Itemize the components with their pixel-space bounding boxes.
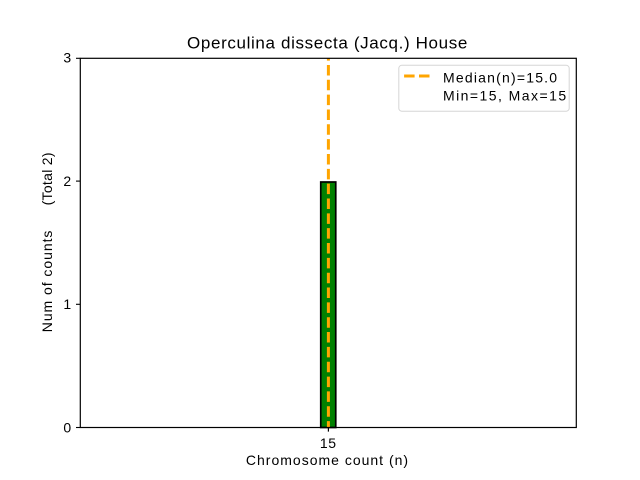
svg-text:Operculina dissecta (Jacq.) Ho: Operculina dissecta (Jacq.) House: [187, 33, 468, 52]
svg-text:Median(n)=15.0: Median(n)=15.0: [443, 70, 558, 86]
svg-text:Min=15, Max=15: Min=15, Max=15: [443, 88, 568, 104]
svg-text:3: 3: [63, 50, 71, 66]
svg-text:2: 2: [63, 173, 71, 189]
svg-text:15: 15: [320, 435, 337, 451]
svg-text:0: 0: [63, 419, 71, 435]
svg-text:1: 1: [63, 296, 71, 312]
svg-text:Chromosome count (n): Chromosome count (n): [246, 452, 409, 468]
svg-text:Num of counts (Total 2): Num of counts (Total 2): [39, 152, 55, 332]
